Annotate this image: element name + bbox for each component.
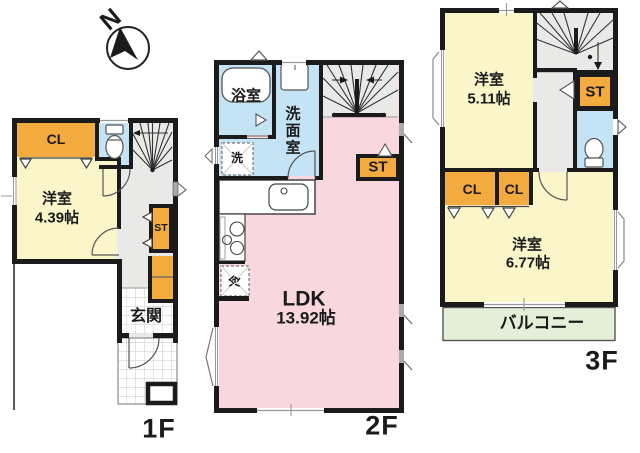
floor3-balcony-label: バルコニー <box>500 315 585 332</box>
floor1-closet-label: CL <box>47 132 66 146</box>
floor1-room-size: 4.39帖 <box>35 211 79 226</box>
floor3-closet-b-label: CL <box>505 182 524 196</box>
ldk-left-window <box>206 328 213 386</box>
vent-icon-2f <box>251 51 267 60</box>
floor3-room-small-size: 5.11帖 <box>467 92 510 107</box>
floor1-porch-pillar <box>148 384 175 403</box>
ldk-right-window-2 <box>399 304 404 317</box>
toilet-icon-1f <box>106 125 123 159</box>
floor2-bath-label: 浴室 <box>231 89 261 104</box>
washer-window <box>205 149 212 163</box>
floor3-room-small-name: 洋室 <box>474 73 504 88</box>
floor1-entrance-label: 玄関 <box>130 309 162 325</box>
floor1-storage2 <box>152 256 173 302</box>
floor2-fridge-label: 冷 <box>229 275 241 287</box>
floor3-room-large-name: 洋室 <box>512 238 542 253</box>
floor2-storage-label: ST <box>368 160 387 175</box>
floor1-western-room <box>17 157 117 259</box>
floor2-ldk-name: LDK <box>282 289 325 310</box>
floorplan-canvas: N CL 洋室 4.39帖 ST 玄関 1F 浴室 洗面室 洗 ST 冷 LDK… <box>0 0 640 453</box>
floor1-room-name: 洋室 <box>42 192 72 207</box>
floor3-label: 3F <box>585 348 619 375</box>
floor1-storage-label: ST <box>154 223 167 234</box>
ldk-right-window-1 <box>399 123 404 136</box>
floor3-left-window <box>433 52 439 125</box>
floor3-storage-label: ST <box>585 85 604 100</box>
floor2-ldk-size: 13.92帖 <box>276 310 336 327</box>
floor3-plan <box>433 1 626 341</box>
floorplan-drawing <box>0 0 640 453</box>
ldk-right-window-3 <box>399 350 404 363</box>
floor2-label: 2F <box>365 413 399 440</box>
floor2-plan <box>205 51 412 416</box>
toilet-icon-3f <box>585 139 603 168</box>
floor1-label: 1F <box>142 416 176 443</box>
floor1-side-window <box>173 182 178 196</box>
floor3-right-window <box>618 212 624 268</box>
toilet-window <box>618 120 626 134</box>
floor3-room-large-size: 6.77帖 <box>506 256 550 271</box>
floor2-washer-label: 洗 <box>231 152 243 164</box>
vent-icon-3f <box>552 1 568 8</box>
floor1-plan <box>1 118 186 410</box>
floor3-closet-a-label: CL <box>463 182 482 196</box>
floor2-washroom-label: 洗面室 <box>285 106 300 157</box>
